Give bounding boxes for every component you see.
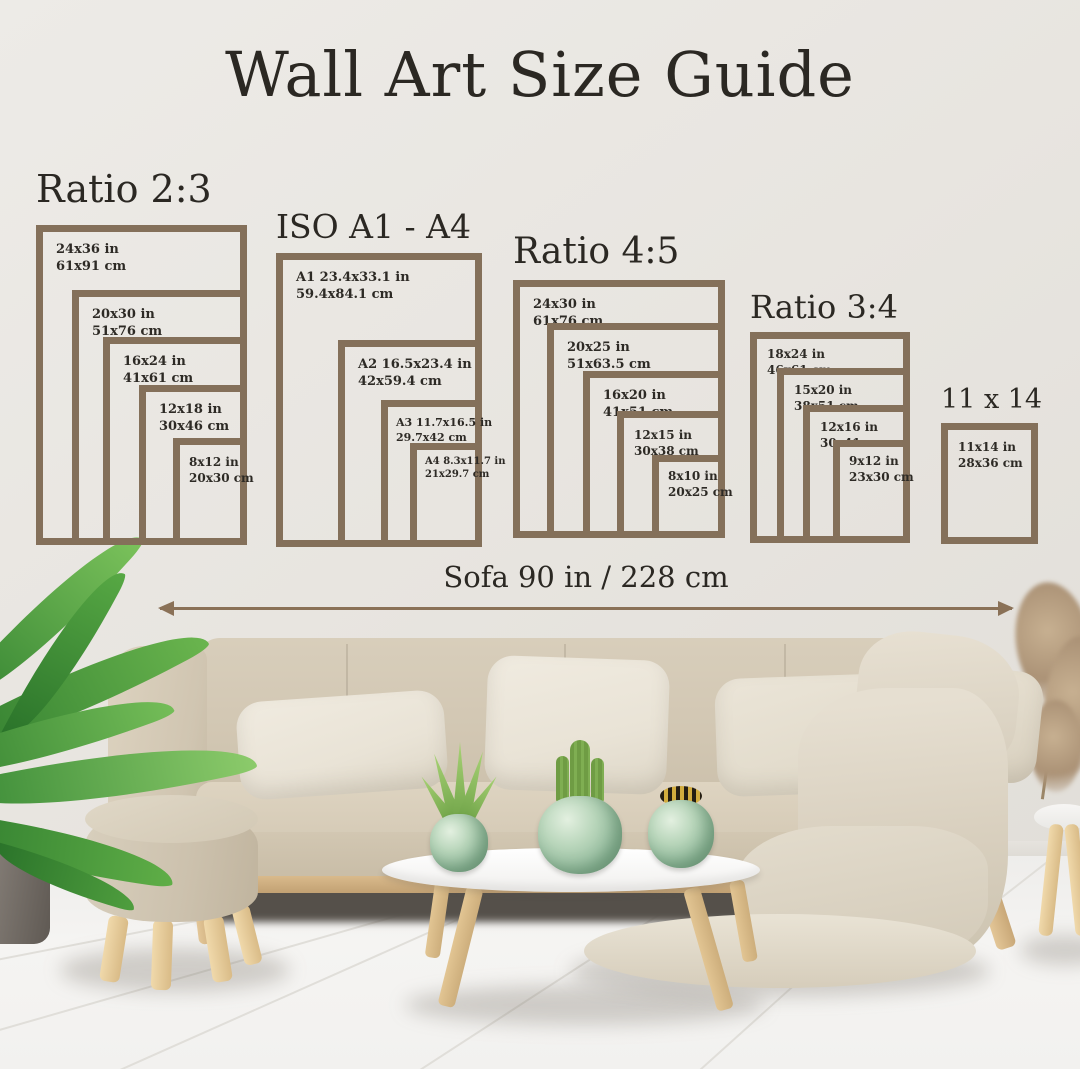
frame-9x12: 9x12 in 23x30 cm xyxy=(833,440,910,543)
frame-size-label: 9x12 in 23x30 cm xyxy=(849,453,914,485)
size-in: 20x30 in xyxy=(92,306,162,323)
size-in: 15x20 in xyxy=(794,382,859,398)
frame-8x12: 8x12 in 20x30 cm xyxy=(173,438,247,545)
size-cm: 59.4x84.1 cm xyxy=(296,286,410,303)
size-in: 20x25 in xyxy=(567,339,651,356)
size-in: 8x10 in xyxy=(668,468,733,484)
size-in: A1 23.4x33.1 in xyxy=(296,269,410,286)
size-group-11x14: 11 x 14 11x14 in 28x36 cm xyxy=(941,423,1038,544)
frame-a4: A4 8.3x11.7 in 21x29.7 cm xyxy=(410,443,482,547)
size-in: 11x14 in xyxy=(958,439,1023,455)
frame-size-label: 16x24 in 41x61 cm xyxy=(123,353,193,388)
arrow-right-icon xyxy=(998,601,1014,616)
size-cm: 20x25 cm xyxy=(668,484,733,500)
size-in: 24x30 in xyxy=(533,296,603,313)
size-in: 12x16 in xyxy=(820,419,885,435)
frame-size-label: 20x25 in 51x63.5 cm xyxy=(567,339,651,374)
size-group-ratio-3-4: Ratio 3:4 18x24 in 46x61 cm 15x20 in 38x… xyxy=(750,332,910,543)
size-cm: 21x29.7 cm xyxy=(425,468,505,481)
group-heading: ISO A1 - A4 xyxy=(276,207,471,246)
size-in: 18x24 in xyxy=(767,346,832,362)
size-in: A4 8.3x11.7 in xyxy=(425,455,505,468)
size-in: 9x12 in xyxy=(849,453,914,469)
arrow-left-icon xyxy=(158,601,174,616)
frame-size-label: A4 8.3x11.7 in 21x29.7 cm xyxy=(425,455,505,481)
frame-size-label: 20x30 in 51x76 cm xyxy=(92,306,162,341)
size-group-ratio-2-3: Ratio 2:3 24x36 in 61x91 cm 20x30 in 51x… xyxy=(36,225,247,545)
size-cm: 61x91 cm xyxy=(56,258,126,275)
group-heading: Ratio 4:5 xyxy=(513,231,679,272)
size-in: 16x20 in xyxy=(603,387,673,404)
frame-size-label: A3 11.7x16.5 in 29.7x42 cm xyxy=(396,416,492,445)
frame-size-label: 24x36 in 61x91 cm xyxy=(56,241,126,276)
frame-size-label: 8x12 in 20x30 cm xyxy=(189,454,254,486)
size-in: 12x15 in xyxy=(634,427,699,443)
size-cm: 28x36 cm xyxy=(958,455,1023,471)
size-cm: 20x30 cm xyxy=(189,470,254,486)
sofa-width-label: Sofa 90 in / 228 cm xyxy=(160,560,1012,594)
size-group-ratio-4-5: Ratio 4:5 24x30 in 61x76 cm 20x25 in 51x… xyxy=(513,280,725,538)
size-cm: 30x46 cm xyxy=(159,418,229,435)
size-in: 8x12 in xyxy=(189,454,254,470)
frame-size-label: 12x18 in 30x46 cm xyxy=(159,401,229,436)
measure-arrow-line xyxy=(160,607,1012,610)
frame-8x10: 8x10 in 20x25 cm xyxy=(652,455,725,538)
size-guide-graphic: Wall Art Size Guide Ratio 2:3 24x36 in 6… xyxy=(0,0,1080,1069)
frame-size-label: A2 16.5x23.4 in 42x59.4 cm xyxy=(358,356,472,391)
group-heading: Ratio 3:4 xyxy=(750,288,898,326)
size-in: 16x24 in xyxy=(123,353,193,370)
frame-size-label: 11x14 in 28x36 cm xyxy=(958,439,1023,471)
size-cm: 23x30 cm xyxy=(849,469,914,485)
sofa-width-measure: Sofa 90 in / 228 cm xyxy=(160,560,1012,610)
group-heading: 11 x 14 xyxy=(941,384,1042,415)
size-in: A3 11.7x16.5 in xyxy=(396,416,492,431)
size-group-iso-a1-a4: ISO A1 - A4 A1 23.4x33.1 in 59.4x84.1 cm… xyxy=(276,253,482,547)
frame-size-label: 8x10 in 20x25 cm xyxy=(668,468,733,500)
page-title: Wall Art Size Guide xyxy=(225,38,855,111)
frame-11x14: 11x14 in 28x36 cm xyxy=(941,423,1038,544)
size-in: 24x36 in xyxy=(56,241,126,258)
group-heading: Ratio 2:3 xyxy=(36,167,212,211)
size-in: 12x18 in xyxy=(159,401,229,418)
size-in: A2 16.5x23.4 in xyxy=(358,356,472,373)
size-cm: 42x59.4 cm xyxy=(358,373,472,390)
frame-size-label: A1 23.4x33.1 in 59.4x84.1 cm xyxy=(296,269,410,304)
wall-art-size-guide-poster: Wall Art Size Guide Ratio 2:3 24x36 in 6… xyxy=(0,0,1080,1069)
